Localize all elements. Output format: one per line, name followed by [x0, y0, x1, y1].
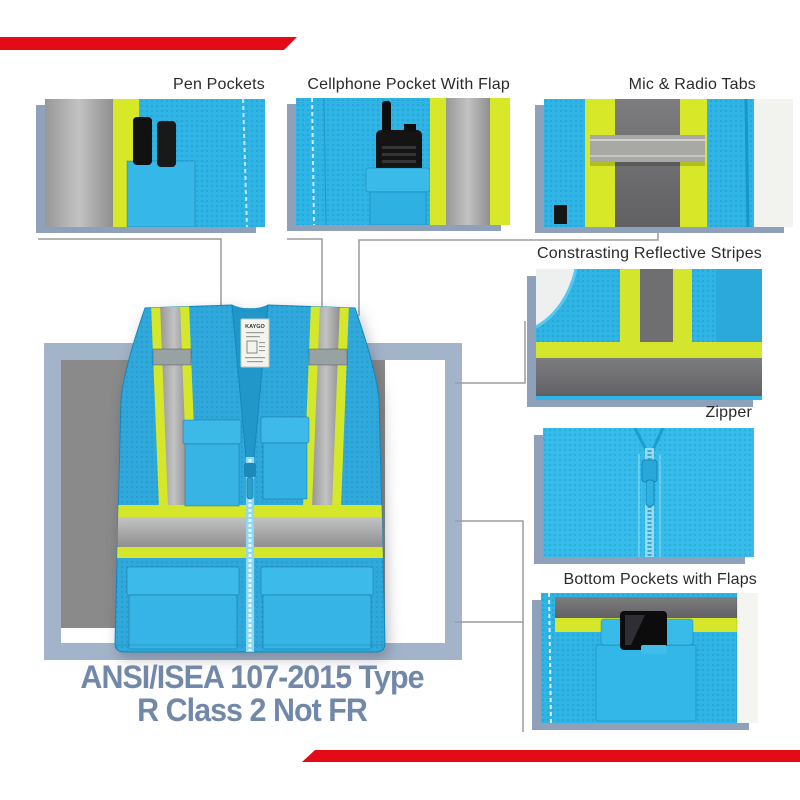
top-red-banner	[0, 37, 297, 50]
compliance-line-1: ANSI/ISEA 107-2015 Type	[67, 661, 438, 694]
pen	[157, 121, 176, 167]
pocket-body	[596, 645, 696, 721]
small-tab	[554, 205, 567, 224]
yellow-stripe	[673, 269, 692, 344]
pen-pockets-thumbnail	[45, 99, 265, 227]
zipper-thumbnail	[543, 428, 754, 557]
reflective-stripe	[640, 269, 673, 344]
brand-tag: KAYGO	[241, 319, 269, 367]
label-zipper: Zipper	[532, 404, 752, 422]
safety-vest: KAYGO	[100, 295, 400, 660]
connector-zipper-bottom-pockets	[455, 521, 523, 732]
photo-background	[737, 593, 758, 723]
pen-pocket-flap	[183, 420, 241, 444]
zipper-slider	[244, 463, 256, 477]
zipper-pull	[247, 477, 253, 499]
bottom-right-pocket-flap	[261, 567, 373, 595]
phone	[620, 611, 667, 650]
reflective-stripes-thumbnail	[536, 269, 762, 400]
photo-background	[754, 99, 793, 227]
yellow-stripe	[620, 269, 640, 344]
bottom-red-banner	[302, 750, 800, 762]
compliance-title: ANSI/ISEA 107-2015 Type R Class 2 Not FR	[67, 661, 438, 727]
yellow-band	[536, 342, 762, 358]
cellphone-pocket-thumbnail	[296, 98, 510, 225]
vest-edge	[746, 99, 748, 227]
bottom-pockets-thumbnail	[541, 593, 758, 723]
label-mic-radio-tabs: Mic & Radio Tabs	[536, 76, 756, 94]
bottom-left-pocket-flap	[127, 567, 239, 595]
brand-tag-text: KAYGO	[245, 324, 265, 330]
pen-pocket-body	[127, 161, 195, 227]
label-bottom-pockets: Bottom Pockets with Flaps	[537, 571, 757, 589]
radio-antenna	[382, 101, 391, 135]
reflective-stripe	[446, 98, 490, 225]
reflective-stripe	[45, 99, 113, 227]
pen	[133, 117, 152, 165]
yellow-stripe	[490, 98, 510, 225]
cellphone-pocket	[263, 443, 307, 499]
bottom-left-pocket	[129, 595, 237, 649]
label-pen-pockets: Pen Pockets	[45, 76, 265, 94]
pen-pocket	[185, 444, 239, 506]
compliance-line-2: R Class 2 Not FR	[67, 694, 438, 727]
cellphone-pocket-flap	[261, 417, 309, 443]
zipper-pull	[646, 480, 654, 506]
right-mic-tab	[309, 349, 347, 365]
yellow-stripe	[430, 98, 446, 225]
zipper-slider	[642, 460, 657, 482]
pocket-flap	[366, 168, 430, 192]
label-cellphone-pocket: Cellphone Pocket With Flap	[290, 76, 510, 94]
flap-tab	[641, 645, 667, 654]
bottom-right-pocket	[263, 595, 371, 649]
product-infographic: KAYGO	[0, 0, 800, 800]
label-reflective-stripes: Constrasting Reflective Stripes	[532, 245, 762, 263]
mic-radio-tabs-thumbnail	[544, 99, 793, 227]
left-mic-tab	[153, 349, 191, 365]
connector-reflective-stripes	[455, 321, 525, 383]
vest-right-shoulder-stripe	[303, 303, 349, 507]
reflective-band	[536, 358, 762, 396]
pocket-body	[370, 192, 426, 225]
webbing-tab	[590, 135, 705, 166]
